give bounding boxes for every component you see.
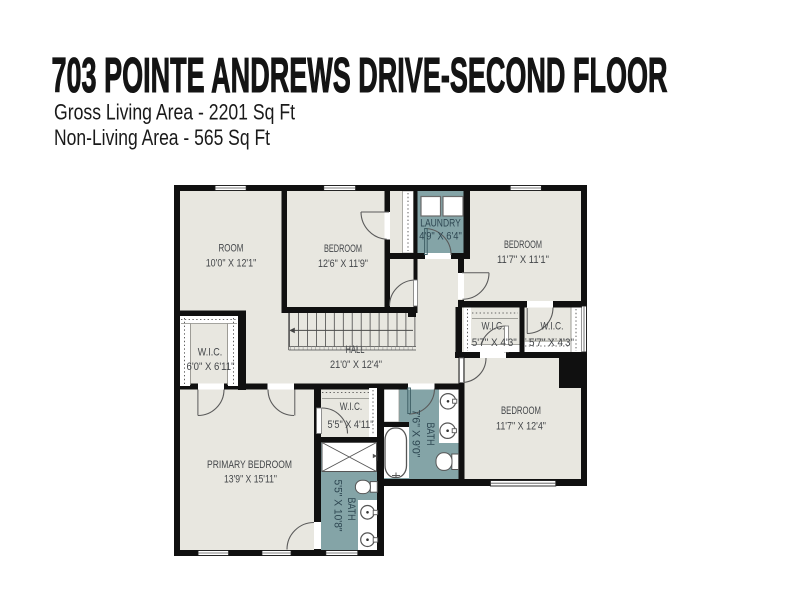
svg-text:W.I.C.: W.I.C. [541,320,564,332]
svg-text:5'5" X 4'11": 5'5" X 4'11" [328,419,374,431]
svg-text:W.I.C.: W.I.C. [482,320,505,332]
svg-text:ROOM: ROOM [219,243,244,255]
svg-text:4'9" X 6'4": 4'9" X 6'4" [419,231,462,243]
svg-text:6'0" X 6'11": 6'0" X 6'11" [187,361,235,373]
svg-text:BEDROOM: BEDROOM [324,243,362,255]
svg-text:703 POINTE ANDREWS DRIVE-SECON: 703 POINTE ANDREWS DRIVE-SECOND FLOOR [52,49,668,103]
svg-text:11'7" X 12'4": 11'7" X 12'4" [496,421,546,433]
svg-text:5'7" X 4'3": 5'7" X 4'3" [529,337,574,349]
svg-text:Gross Living Area - 2201 Sq Ft: Gross Living Area - 2201 Sq Ft [54,100,295,125]
svg-text:HALL: HALL [346,344,365,356]
svg-text:LAUNDRY: LAUNDRY [420,217,461,229]
svg-text:BEDROOM: BEDROOM [501,405,541,417]
svg-text:7'6" X 9'0": 7'6" X 9'0" [410,410,422,458]
svg-text:10'0" X 12'1": 10'0" X 12'1" [206,258,257,270]
svg-text:BATH: BATH [424,423,436,446]
svg-text:5'7" X 4'3": 5'7" X 4'3" [472,337,517,349]
svg-text:11'7" X 11'1": 11'7" X 11'1" [497,254,549,266]
svg-text:BEDROOM: BEDROOM [504,239,542,251]
svg-text:13'9" X 15'11": 13'9" X 15'11" [224,474,277,486]
svg-text:21'0" X 12'4": 21'0" X 12'4" [330,359,382,371]
svg-text:Non-Living Area - 565 Sq Ft: Non-Living Area - 565 Sq Ft [54,125,270,150]
svg-text:PRIMARY BEDROOM: PRIMARY BEDROOM [207,459,292,471]
svg-text:W.I.C.: W.I.C. [198,347,223,359]
svg-text:BATH: BATH [345,498,357,521]
svg-text:W.I.C.: W.I.C. [340,401,362,413]
svg-text:12'6" X 11'9": 12'6" X 11'9" [318,258,368,270]
svg-text:5'5" X 10'8": 5'5" X 10'8" [332,480,344,532]
